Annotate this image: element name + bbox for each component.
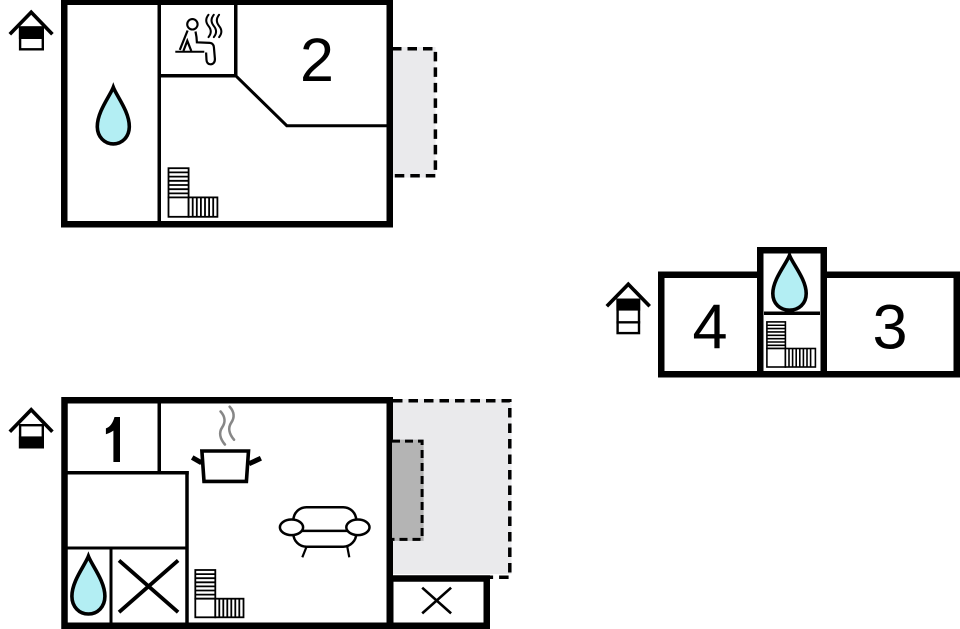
svg-text:2: 2	[300, 26, 334, 94]
svg-text:4: 4	[692, 293, 727, 363]
svg-text:3: 3	[872, 293, 907, 363]
